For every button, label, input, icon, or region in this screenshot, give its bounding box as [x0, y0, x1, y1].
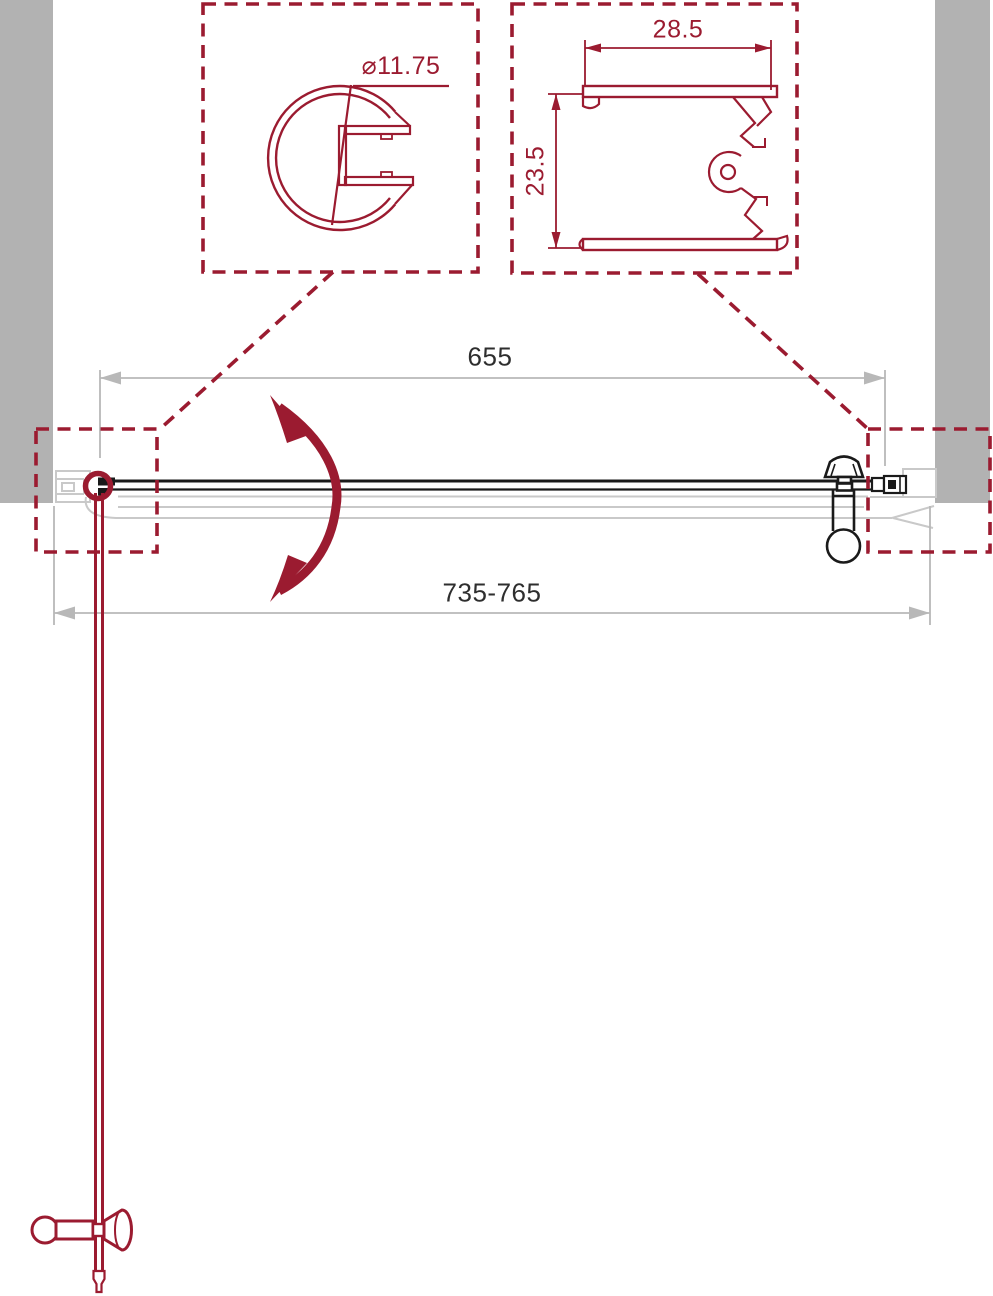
door-swing-arrow: [270, 395, 337, 602]
wall-profile-drawing: [548, 40, 788, 250]
profile-web-lower: [741, 188, 762, 239]
arrowhead-right: [909, 607, 930, 620]
profile-notch-top: [381, 134, 392, 139]
dimension-23-5: [548, 94, 583, 248]
door-bottom-seal: [94, 1271, 105, 1292]
door-knob-bar: [56, 1221, 93, 1239]
profile-top-plate: [583, 86, 777, 97]
arrowhead-bottom: [552, 232, 561, 248]
ghost-door-closed: [56, 469, 936, 528]
dimension-28-5: [585, 40, 771, 90]
knob-base: [837, 484, 852, 491]
arrowhead-left: [585, 44, 601, 53]
label-opening-width-735-765: 735-765: [443, 578, 542, 609]
label-diameter-11-75: ⌀11.75: [362, 51, 441, 81]
profile-boss-ring: [709, 152, 741, 192]
profile-finger-bottom: [345, 177, 413, 185]
ghost-wall-catch: [870, 497, 934, 528]
clamp-sleeve: [872, 478, 884, 491]
technical-drawing-page: ⌀11.75 28.5 23.5 655 735-765: [0, 0, 993, 1296]
profile-notch-bottom: [381, 172, 392, 177]
ghost-door-lines: [118, 497, 892, 519]
profile-inner-circle: [276, 94, 390, 222]
arrowhead-left: [54, 607, 75, 620]
label-width-28-5: 28.5: [653, 16, 704, 45]
knob-dome: [825, 457, 863, 478]
profile-tabs: [752, 138, 767, 206]
shower-door-plan-drawing: [0, 0, 993, 1296]
hinge-pivot: [83, 471, 115, 501]
profile-boss-hole: [721, 165, 735, 179]
profile-bottom-foot: [583, 239, 777, 250]
arrowhead-top: [552, 94, 561, 110]
leader-line-left: [160, 272, 333, 429]
profile-top-hook: [583, 97, 599, 108]
dimension-655: [100, 370, 885, 466]
arrowhead-right: [755, 44, 771, 53]
knob-grip: [827, 530, 860, 563]
extension-line: [548, 94, 583, 248]
glass-panel: [104, 481, 872, 490]
ghost-wall-bracket: [903, 469, 936, 497]
profile-web-upper-edge: [757, 97, 771, 126]
door-knob-mount: [93, 1224, 104, 1236]
knob-profile-drawing: [268, 85, 449, 230]
knob-stem: [833, 491, 854, 532]
clamp-block: [888, 480, 896, 489]
ghost-hinge-bracket-slot: [62, 483, 74, 491]
profile-outer-circle: [268, 86, 395, 230]
arrowhead-right: [864, 372, 885, 385]
knob-neck: [838, 477, 851, 483]
arrowhead-left: [100, 372, 121, 385]
label-height-23-5: 23.5: [522, 146, 551, 197]
wall-clamp: [872, 476, 906, 493]
detail-callout-knob-profile: [203, 4, 478, 272]
profile-finger-top: [345, 126, 410, 134]
label-glass-width-655: 655: [468, 342, 513, 373]
profile-web-upper: [733, 97, 755, 147]
leader-line-right: [698, 274, 868, 429]
panel-knob: [825, 457, 863, 563]
door-knob-end: [32, 1217, 58, 1243]
